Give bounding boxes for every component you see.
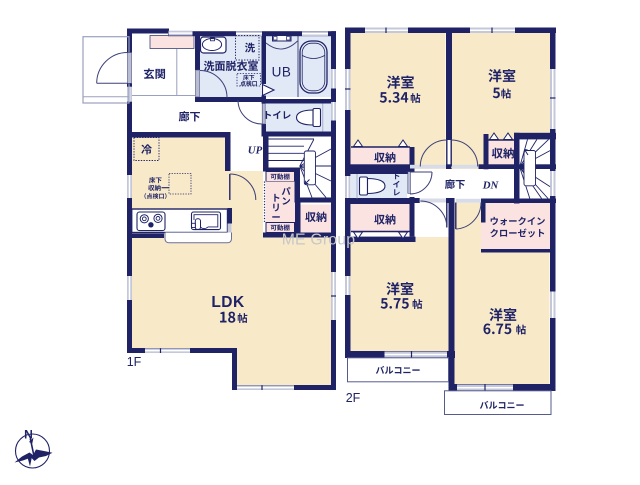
svg-text:ME Group: ME Group: [282, 232, 356, 249]
svg-text:N: N: [24, 428, 33, 442]
svg-text:1F: 1F: [127, 355, 142, 369]
svg-text:2F: 2F: [346, 391, 361, 405]
svg-text:LDK: LDK: [211, 294, 245, 311]
svg-text:DN: DN: [482, 180, 500, 192]
svg-text:UB: UB: [272, 65, 292, 80]
svg-text:UP: UP: [248, 145, 263, 157]
